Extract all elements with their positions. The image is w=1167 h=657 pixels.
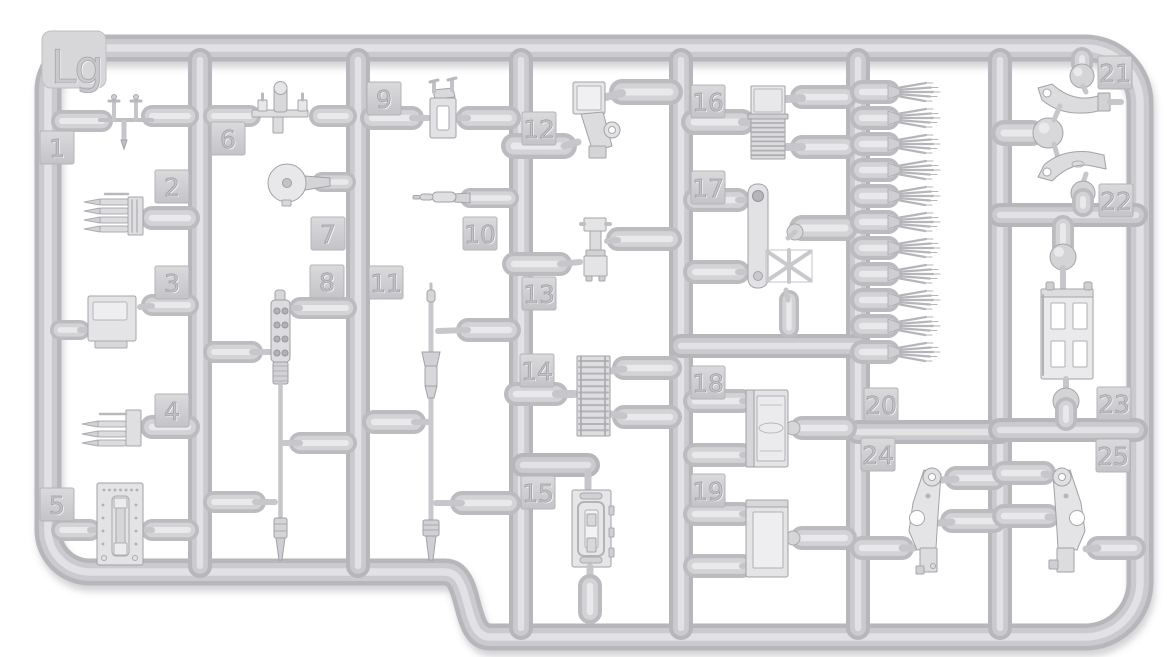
part-tag-14: 1414 (520, 354, 554, 387)
part-number: 23 (1098, 390, 1130, 419)
part-tag-16: 1616 (691, 85, 725, 118)
part-tag-18: 1818 (691, 366, 725, 399)
part-24 (862, 468, 994, 574)
part-tag-7: 77 (311, 217, 345, 250)
part-7 (268, 164, 346, 206)
part-number: 17 (692, 174, 724, 203)
part-tag-6: 66 (211, 122, 245, 155)
part-number: 7 (320, 220, 336, 249)
part-1 (62, 95, 188, 150)
part-11 (374, 284, 509, 560)
part-number: 10 (464, 220, 496, 249)
part-number: 2 (164, 173, 180, 202)
sprue-runners (200, 60, 1136, 628)
part-tag-2: 22 (155, 170, 189, 203)
part-tag-11: 1111 (369, 266, 403, 299)
part-19 (695, 500, 845, 577)
part-number: 12 (523, 115, 555, 144)
part-number: 11 (370, 269, 402, 298)
part-tag-1: 11 (40, 131, 74, 164)
part-tag-21: 2121 (1098, 56, 1132, 89)
part-tag-19: 1919 (691, 474, 725, 507)
part-tag-10: 1010 (463, 217, 497, 250)
part-tag-15: 1515 (521, 476, 555, 509)
part-5 (62, 483, 188, 565)
sprue-id-label: LgLg (42, 31, 106, 95)
part-20 (862, 83, 940, 361)
part-tag-24: 2424 (861, 438, 895, 471)
sprue-photo: 1122334455667788991010111112121313141415… (0, 0, 1167, 657)
part-tag-22: 2222 (1099, 184, 1133, 217)
part-tag-3: 33 (155, 266, 189, 299)
sprue-label: Lg (51, 40, 102, 94)
part-number: 15 (522, 479, 554, 508)
sprue-svg: 1122334455667788991010111112121313141415… (0, 0, 1167, 657)
part-tag-12: 1212 (522, 112, 556, 145)
part-tag-20: 2020 (864, 388, 898, 421)
part-number: 22 (1100, 187, 1132, 216)
part-22 (1004, 106, 1106, 206)
part-8 (214, 290, 346, 560)
part-number: 1 (49, 134, 65, 163)
part-17 (695, 184, 845, 328)
part-number: 16 (692, 88, 724, 117)
part-number: 5 (49, 491, 65, 520)
part-tag-17: 1717 (691, 171, 725, 204)
part-tag-13: 1313 (522, 277, 556, 310)
part-13 (514, 218, 670, 281)
part-number: 6 (220, 125, 236, 154)
part-tag-25: 2525 (1096, 439, 1130, 472)
part-number: 13 (523, 280, 555, 309)
part-number: 25 (1097, 442, 1129, 471)
part-23 (1041, 226, 1093, 420)
part-18 (695, 390, 845, 467)
part-number: 14 (521, 357, 553, 386)
part-tag-9: 99 (367, 82, 401, 115)
part-tag-23: 2323 (1097, 387, 1131, 420)
part-number: 3 (164, 269, 180, 298)
part-number: 20 (865, 391, 897, 420)
part-tag-4: 44 (155, 394, 189, 427)
part-tag-8: 88 (310, 265, 344, 298)
part-number: 24 (862, 441, 894, 470)
part-tag-5: 55 (40, 488, 74, 521)
part-number: 9 (376, 85, 392, 114)
part-number: 8 (319, 268, 335, 297)
part-number: 21 (1099, 59, 1131, 88)
part-number: 19 (692, 477, 724, 506)
part-25 (1004, 468, 1134, 572)
part-3 (60, 296, 188, 348)
part-10 (413, 192, 509, 203)
part-number: 18 (692, 369, 724, 398)
part-number: 4 (164, 397, 180, 426)
part-15 (572, 472, 614, 612)
